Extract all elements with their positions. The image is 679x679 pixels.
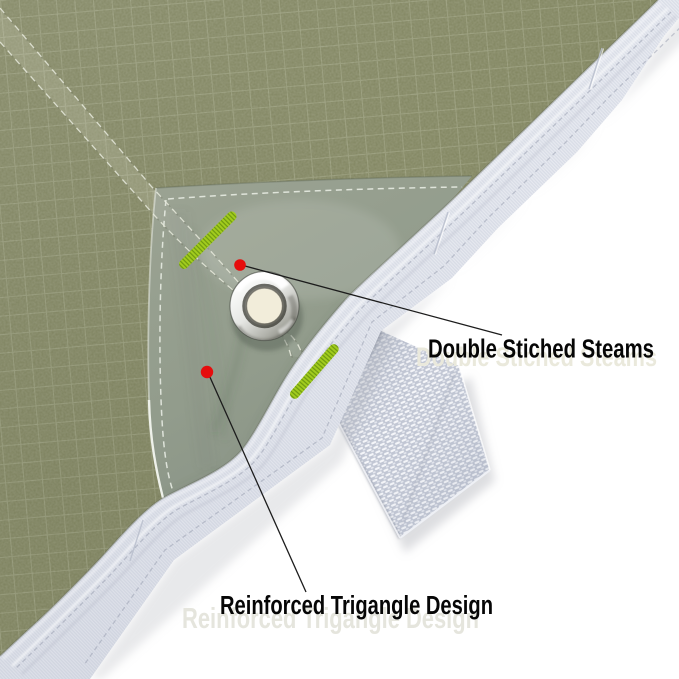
svg-text:Double Stiched Steams: Double Stiched Steams — [428, 336, 654, 364]
svg-text:Reinforced Trigangle Design: Reinforced Trigangle Design — [220, 592, 493, 620]
